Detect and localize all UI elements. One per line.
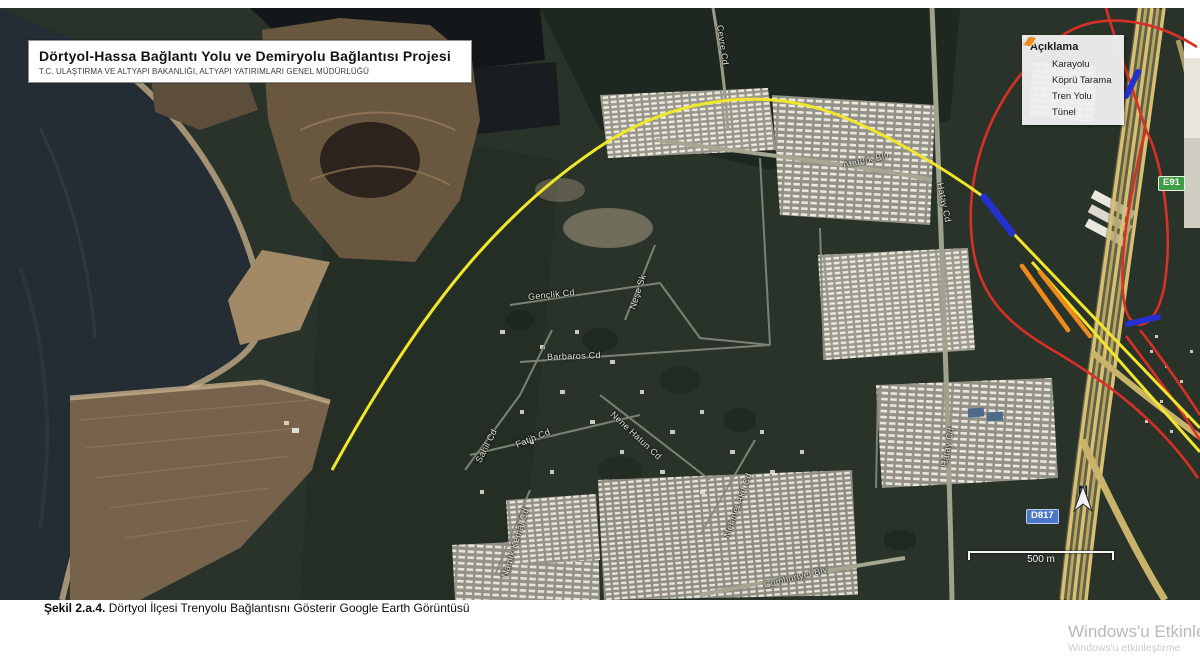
legend-title: Açıklama	[1030, 41, 1116, 53]
figure-caption-text: Dörtyol İlçesi Trenyolu Bağlantısnı Göst…	[105, 601, 469, 615]
street-label: Barbaros Cd	[547, 350, 601, 362]
e-road-badge: E91	[1158, 176, 1185, 191]
legend: Açıklama Karayolu Köprü Tarama Tren Yolu	[1022, 35, 1124, 125]
figure-caption-number: Şekil 2.a.4.	[44, 601, 105, 615]
legend-item-tunel: Tünel	[1030, 106, 1116, 118]
windows-activation-watermark: Windows'u Etkinle Windows'u etkinleştirm…	[1068, 622, 1200, 654]
tren-yolu-icon	[1030, 90, 1046, 102]
legend-label: Tünel	[1052, 107, 1076, 118]
watermark-line2: Windows'u etkinleştirme	[1068, 642, 1200, 654]
scale-bar: 500 m	[968, 551, 1114, 561]
satellite-imagery	[0, 8, 1200, 600]
legend-label: Köprü Tarama	[1052, 75, 1112, 86]
d-road-badge: D817	[1026, 509, 1059, 524]
watermark-line1: Windows'u Etkinle	[1068, 622, 1200, 642]
map-title-box: Dörtyol-Hassa Bağlantı Yolu ve Demiryolu…	[28, 40, 472, 83]
legend-label: Tren Yolu	[1052, 91, 1092, 102]
satellite-map: Atatürk BlvHatay CdHatay CdÇevre CdGençl…	[0, 8, 1200, 600]
map-title: Dörtyol-Hassa Bağlantı Yolu ve Demiryolu…	[39, 48, 461, 64]
legend-item-tren-yolu: Tren Yolu	[1030, 90, 1116, 102]
north-arrow-icon	[1066, 484, 1100, 514]
legend-item-kopru-tarama: Köprü Tarama	[1030, 74, 1116, 86]
legend-label: Karayolu	[1052, 59, 1090, 70]
map-subtitle: T.C. ULAŞTIRMA VE ALTYAPI BAKANLIĞI, ALT…	[39, 67, 461, 76]
north-arrow: N	[1066, 484, 1100, 498]
scale-label: 500 m	[968, 554, 1114, 565]
legend-item-karayolu: Karayolu	[1030, 58, 1116, 70]
tunel-icon	[1030, 106, 1046, 118]
figure-caption: Şekil 2.a.4. Dörtyol İlçesi Trenyolu Bağ…	[44, 601, 470, 615]
karayolu-icon	[1030, 58, 1046, 70]
kopru-tarama-icon	[1030, 74, 1046, 86]
